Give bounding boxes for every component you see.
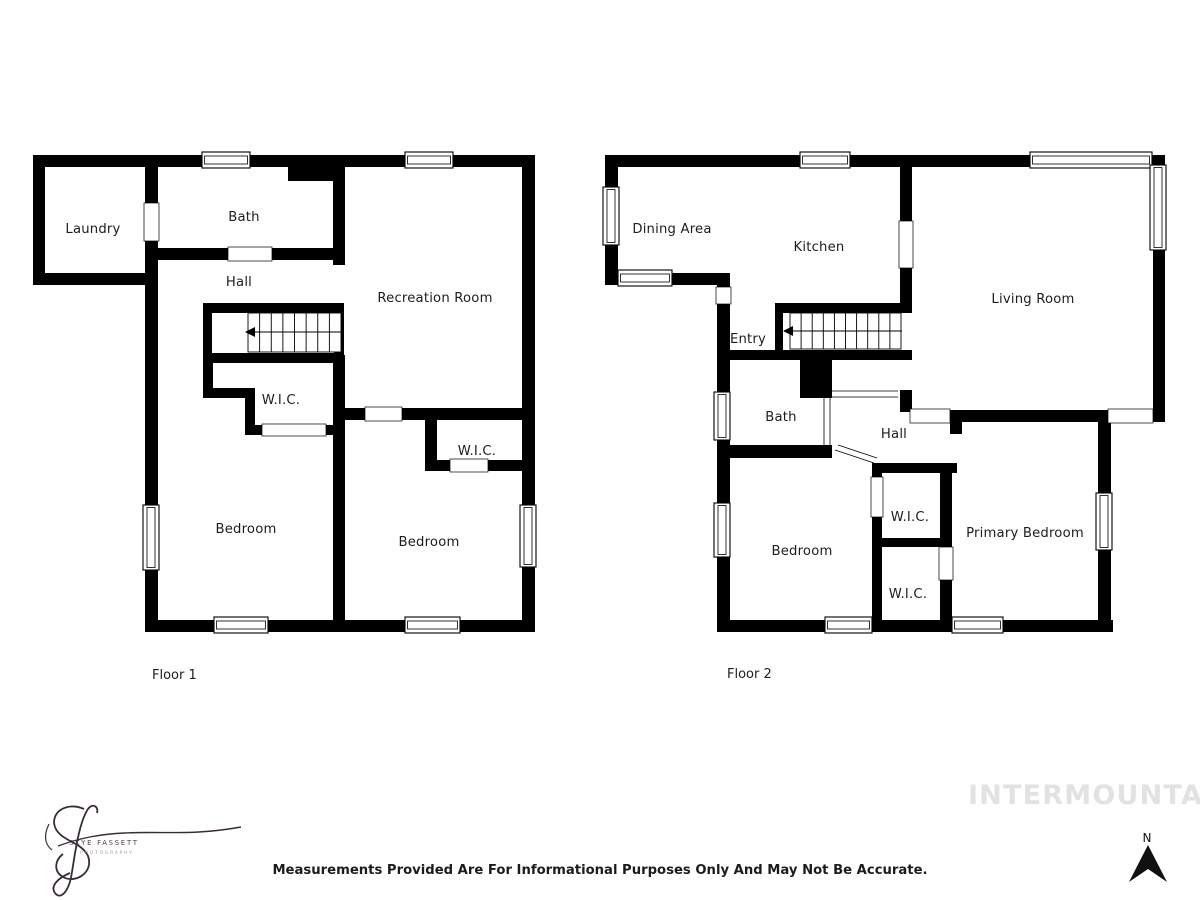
floorplan-canvas: Laundry Bath Hall Recreation Room W.I.C.… <box>0 0 1200 900</box>
room-label-bedroom-right: Bedroom <box>398 535 459 550</box>
room-label-hall-f1: Hall <box>226 275 252 290</box>
window <box>603 187 619 245</box>
window-pane <box>718 395 726 438</box>
north-compass: N <box>1129 831 1167 882</box>
photographer-logo: SKYE FASSETT PHOTOGRAPHY <box>46 806 241 896</box>
wall-segment <box>33 155 535 167</box>
window-pane <box>408 621 458 629</box>
window <box>800 152 850 168</box>
wall-segment <box>717 620 1113 632</box>
wall-segment <box>203 353 344 363</box>
opening-line <box>835 450 874 463</box>
logo-tagline: PHOTOGRAPHY <box>80 850 134 856</box>
window-pane <box>1033 156 1150 164</box>
room-label-kitchen: Kitchen <box>794 240 845 255</box>
room-label-primary: Primary Bedroom <box>966 526 1084 541</box>
window-pane <box>607 190 615 243</box>
room-label-wic-a-f2: W.I.C. <box>891 510 929 525</box>
door-opening <box>228 247 272 261</box>
window <box>202 152 250 168</box>
window-pane <box>1100 496 1108 548</box>
door-opening <box>716 287 731 304</box>
north-arrow-icon <box>1129 845 1167 882</box>
floor1-plan-staircase <box>245 313 342 352</box>
room-label-bath-f2: Bath <box>765 410 796 425</box>
door-opening <box>899 221 913 268</box>
stair-direction-arrow-icon <box>783 326 793 336</box>
window-pane <box>217 621 266 629</box>
window-pane <box>1154 168 1162 248</box>
room-label-wic-a-f1: W.I.C. <box>262 393 300 408</box>
room-label-wic-b-f2: W.I.C. <box>889 587 927 602</box>
wall-segment <box>900 155 912 222</box>
disclaimer-text: Measurements Provided Are For Informatio… <box>272 863 927 878</box>
wall-segment <box>203 303 343 313</box>
window <box>214 617 268 633</box>
room-label-wic-b-f1: W.I.C. <box>458 444 496 459</box>
window <box>618 270 672 286</box>
window <box>714 392 730 440</box>
wall-segment <box>33 155 45 285</box>
wall-segment <box>950 410 962 434</box>
door-opening <box>144 203 159 241</box>
room-label-laundry: Laundry <box>65 222 120 237</box>
floor2-caption: Floor 2 <box>727 667 772 682</box>
door-opening <box>365 407 402 421</box>
opening-line <box>838 445 877 458</box>
room-label-living: Living Room <box>991 292 1074 307</box>
door-opening <box>871 477 883 517</box>
wall-segment <box>33 273 151 285</box>
window-pane <box>621 274 670 282</box>
wall-segment <box>775 303 912 313</box>
floor1-caption: Floor 1 <box>152 668 197 683</box>
logo-name: SKYE FASSETT <box>69 839 139 847</box>
floorplan-page: Laundry Bath Hall Recreation Room W.I.C.… <box>0 0 1200 900</box>
wall-segment <box>800 357 832 398</box>
window <box>1096 493 1112 550</box>
window <box>1150 165 1166 250</box>
window <box>1030 152 1152 168</box>
window <box>520 505 536 567</box>
room-label-bath-f1: Bath <box>228 210 259 225</box>
floor2-plan-staircase <box>783 313 902 349</box>
room-label-entry: Entry <box>730 332 766 347</box>
wall-segment <box>717 445 832 458</box>
room-label-bedroom-f2: Bedroom <box>771 544 832 559</box>
door-opening <box>450 459 488 472</box>
window <box>405 617 460 633</box>
window-pane <box>955 621 1001 629</box>
wall-segment <box>950 410 1108 422</box>
door-opening <box>910 409 950 423</box>
room-label-hall-f2: Hall <box>881 427 907 442</box>
room-label-dining: Dining Area <box>632 222 711 237</box>
window-pane <box>524 508 532 565</box>
door-opening <box>262 424 326 436</box>
window-pane <box>718 506 726 555</box>
window <box>714 503 730 557</box>
wall-segment <box>872 538 950 547</box>
window <box>952 617 1003 633</box>
window-pane <box>205 156 248 164</box>
window <box>143 505 159 570</box>
window-pane <box>803 156 848 164</box>
signature-monogram-icon <box>46 806 241 896</box>
window <box>405 152 453 168</box>
door-opening <box>939 547 953 580</box>
window <box>825 617 872 633</box>
room-label-bedroom-left: Bedroom <box>215 522 276 537</box>
wall-segment <box>333 355 345 632</box>
window-pane <box>828 621 870 629</box>
room-label-recreation: Recreation Room <box>377 291 492 306</box>
window-pane <box>408 156 451 164</box>
window-pane <box>147 508 155 568</box>
north-label: N <box>1143 831 1152 845</box>
door-opening <box>1108 409 1153 423</box>
wall-segment <box>288 155 340 181</box>
watermark-text: INTERMOUNTAIN <box>968 780 1200 811</box>
